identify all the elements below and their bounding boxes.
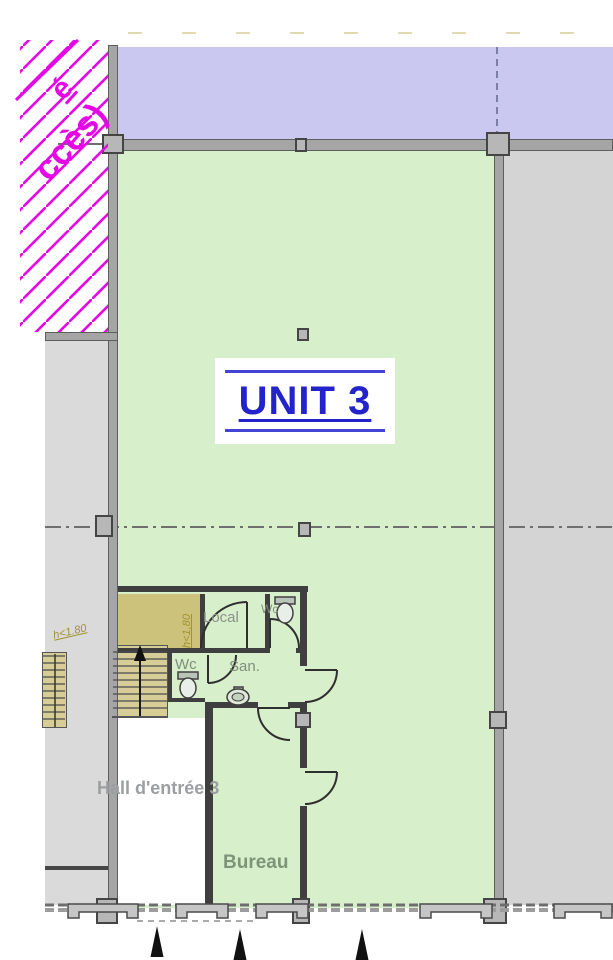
wall-top — [108, 139, 613, 151]
unit-label: UNIT 3 — [225, 379, 385, 423]
partition-san-bottom-2 — [288, 702, 304, 708]
entrance-arrow-icon — [356, 929, 369, 960]
column-free-upper — [297, 328, 309, 341]
partition-hall-bureau — [205, 702, 213, 905]
room-label-wc-upper: Wc — [261, 602, 278, 616]
door-threshold — [554, 904, 612, 918]
column-top-left — [102, 134, 124, 154]
grid-line-vertical-dashed — [496, 47, 498, 140]
adjacent-area-left — [45, 341, 108, 905]
room-label-wc-lower: Wc — [175, 656, 197, 673]
column-bottom-left — [96, 898, 118, 924]
centerline-horizontal — [45, 526, 613, 528]
unit-label-rule-top — [225, 370, 385, 373]
unit-label-rule-bottom — [225, 429, 385, 432]
room-label-bureau: Bureau — [223, 852, 288, 874]
left-staircase — [42, 652, 67, 728]
partition-wc-bottom — [168, 698, 205, 702]
hall-floor-area — [118, 718, 205, 905]
column-bottom-mid — [292, 898, 310, 924]
column-top-right — [486, 132, 510, 156]
entrance-arrow-icon — [151, 926, 164, 957]
room-label-hall: Hall d'entrée 3 — [97, 778, 219, 799]
stairs-bottom-edge — [112, 716, 168, 718]
column-right-mid — [489, 711, 507, 729]
column-bottom-right — [483, 898, 507, 924]
column-sanitary-wall — [295, 712, 311, 728]
column-left-mid — [95, 515, 113, 537]
height-note-stairwell: h<1,80 — [181, 614, 193, 648]
partition-bureau-right — [300, 806, 307, 905]
partition-stairs-wc — [168, 650, 172, 702]
column-free-center — [298, 522, 311, 537]
room-label-san: San. — [229, 658, 260, 675]
room-label-local: Local — [203, 609, 239, 626]
wall-right — [494, 145, 504, 905]
wall-hatch-bottom — [45, 332, 118, 341]
main-staircase — [112, 645, 168, 718]
adjacent-unit-top-area — [118, 47, 613, 142]
left-area-divider-line — [45, 866, 108, 870]
adjacent-area-right — [503, 151, 613, 905]
floor-plan: UNIT 3 Local Wc Wc San. Hall d'entrée 3 … — [0, 0, 613, 960]
access-text-fragment-1: é — [44, 72, 80, 107]
partition-sanitary-right-1 — [300, 586, 307, 666]
column-top-mid — [295, 138, 307, 152]
partition-sanitary-top — [118, 586, 308, 592]
unit-label-box: UNIT 3 — [215, 358, 395, 444]
entrance-arrow-icon — [234, 929, 247, 960]
entrance-arrows — [151, 926, 369, 960]
partition-sanitary-mid-2 — [296, 648, 307, 653]
partition-sanitary-mid-1 — [118, 648, 270, 653]
